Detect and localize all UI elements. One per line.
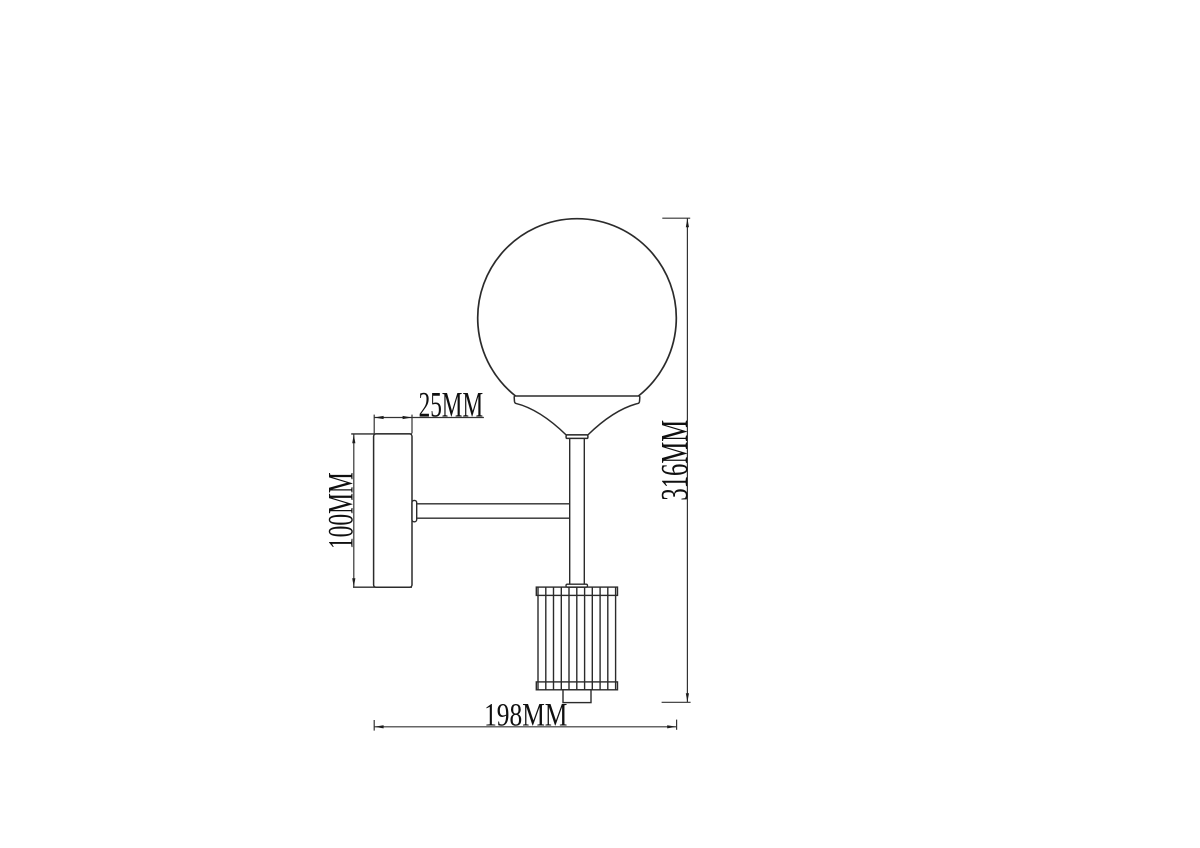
svg-text:100MM: 100MM (321, 472, 361, 549)
svg-text:316MM: 316MM (654, 420, 696, 501)
svg-text:25MM: 25MM (419, 385, 484, 425)
svg-text:198MM: 198MM (484, 698, 567, 734)
